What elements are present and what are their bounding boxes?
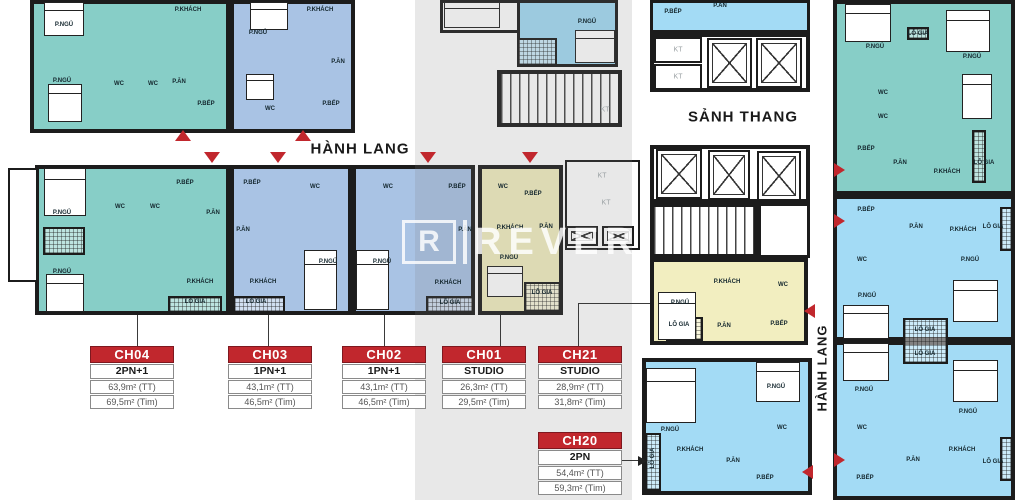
entrance-marker-icon — [804, 304, 815, 318]
card-connector — [578, 303, 650, 304]
room-label-kitchen: P.BẾP — [756, 475, 773, 481]
room-label-kitchen: P.BẾP — [857, 207, 874, 213]
room-label-bedroom: P.NGỦ — [249, 30, 267, 36]
card-connector — [268, 315, 269, 346]
bed-icon — [843, 305, 889, 339]
room-label-living: P.KHÁCH — [934, 169, 961, 175]
room-label-wc: WC — [857, 257, 867, 263]
room-label-wc: WC — [310, 184, 320, 190]
watermark-logo-icon: R — [402, 220, 456, 264]
entrance-marker-icon — [420, 152, 436, 163]
room-label-wc: WC — [148, 81, 158, 87]
room-label-kitchen: P.BẾP — [448, 184, 465, 190]
unit-area-tim: 46,5m² (Tim) — [342, 395, 426, 409]
room-label-bedroom: P.NGỦ — [855, 387, 873, 393]
floor-plan: P.NGỦ P.KHÁCH P.NGỦ WC WC P.ĂN P.BẾP P.N… — [0, 0, 1015, 500]
bed-icon — [845, 4, 891, 42]
entrance-marker-icon — [834, 163, 845, 177]
unit-area-tt: 43,1m² (TT) — [342, 380, 426, 394]
entrance-marker-icon — [204, 152, 220, 163]
room-label-dining: P.ĂN — [713, 3, 727, 9]
room-label-bedroom: P.NGỦ — [373, 259, 391, 265]
unit-code: CH03 — [228, 346, 312, 363]
room-label-kitchen: P.BẾP — [243, 180, 260, 186]
stairs-core — [650, 203, 758, 258]
room-label-living: P.KHÁCH — [187, 279, 214, 285]
room-label-wc: WC — [498, 184, 508, 190]
room-label-dining: P.ĂN — [717, 323, 731, 329]
room-label-loggia: LÔ GIA — [440, 300, 461, 306]
room-label-kitchen: P.BẾP — [197, 101, 214, 107]
room-label-tech: KT — [601, 107, 610, 114]
room-label-bedroom: P.NGỦ — [578, 19, 596, 25]
room-label-kitchen: P.BẾP — [322, 101, 339, 107]
corridor-label-horizontal: HÀNH LANG — [311, 141, 410, 158]
bed-icon — [953, 280, 998, 322]
unit-area-tt: 26,3m² (TT) — [442, 380, 526, 394]
unit-type: 2PN — [538, 450, 622, 465]
unit-area-tt: 54,4m² (TT) — [538, 466, 622, 480]
bed-icon — [44, 2, 84, 36]
room-label-living: P.KHÁCH — [677, 447, 704, 453]
room-label-dining: P.ĂN — [331, 59, 345, 65]
entrance-marker-icon — [834, 453, 845, 467]
room-label-bedroom: P.NGỦ — [319, 259, 337, 265]
room-label-bedroom: P.NGỦ — [671, 300, 689, 306]
room-label-tech: KT — [598, 173, 607, 180]
room-label-living: P.KHÁCH — [175, 7, 202, 13]
entrance-marker-icon — [175, 130, 191, 141]
room-label-wc: WC — [265, 106, 275, 112]
unit-type: 1PN+1 — [228, 364, 312, 379]
unit-code: CH02 — [342, 346, 426, 363]
unit-type: STUDIO — [538, 364, 622, 379]
room-label-loggia: LÔ GIA — [908, 31, 929, 37]
room-label-bedroom: P.NGỦ — [53, 210, 71, 216]
room-label-bedroom: P.NGỦ — [767, 384, 785, 390]
unit-area-tt: 28,9m² (TT) — [538, 380, 622, 394]
room-label-living: P.KHÁCH — [250, 279, 277, 285]
room-label-loggia: LÔ GIA — [915, 327, 936, 333]
room-label-kitchen: P.BẾP — [664, 9, 681, 15]
room-label-wc: WC — [150, 204, 160, 210]
card-connector-arrow-icon — [638, 456, 647, 466]
unit-card-ch02: CH02 1PN+1 43,1m² (TT) 46,5m² (Tim) — [342, 346, 426, 409]
room-label-loggia: LÔ GIA — [974, 160, 995, 166]
unit-card-ch04: CH04 2PN+1 63,9m² (TT) 69,5m² (Tim) — [90, 346, 174, 409]
room-label-bedroom: P.NGỦ — [53, 78, 71, 84]
unit-area-tim: 69,5m² (Tim) — [90, 395, 174, 409]
room-label-wc: WC — [114, 81, 124, 87]
room-label-living: P.KHÁCH — [435, 280, 462, 286]
room-label-loggia: LÔ GIA — [532, 290, 553, 296]
loggia-hatch — [972, 130, 986, 183]
bathroom-hatch — [43, 227, 85, 255]
loggia-hatch — [903, 318, 948, 364]
elevator-icon — [656, 149, 702, 199]
room-label-loggia: LÔ GIA — [915, 351, 936, 357]
unit-area-tim: 29,5m² (Tim) — [442, 395, 526, 409]
room-label-bedroom: P.NGỦ — [959, 409, 977, 415]
card-connector — [137, 315, 138, 346]
room-label-dining: P.ĂN — [172, 79, 186, 85]
unit-area-tim: 59,3m² (Tim) — [538, 481, 622, 495]
unit-card-ch20: CH20 2PN 54,4m² (TT) 59,3m² (Tim) — [538, 432, 622, 495]
unit-code: CH04 — [90, 346, 174, 363]
unit-area-tim: 31,8m² (Tim) — [538, 395, 622, 409]
watermark-divider — [463, 220, 467, 264]
room-label-bedroom: P.NGỦ — [53, 269, 71, 275]
unit-code: CH21 — [538, 346, 622, 363]
room-label-wc: WC — [857, 425, 867, 431]
elevator-icon — [756, 38, 802, 88]
room-label-living: P.KHÁCH — [714, 279, 741, 285]
room-label-wc: WC — [115, 204, 125, 210]
room-label-wc: WC — [778, 282, 788, 288]
room-label-kitchen: P.BẾP — [176, 180, 193, 186]
bed-icon — [843, 343, 889, 381]
room-label-bedroom: P.NGỦ — [963, 54, 981, 60]
card-connector — [578, 303, 579, 346]
entrance-marker-icon — [270, 152, 286, 163]
room-label-tech: KT — [674, 74, 683, 81]
room-label-dining: P.ĂN — [909, 224, 923, 230]
room-label-bedroom: P.NGỦ — [858, 293, 876, 299]
elevator-icon — [707, 38, 752, 88]
room-label-living: P.KHÁCH — [949, 447, 976, 453]
room-label-loggia: LÔ GIA — [983, 224, 1004, 230]
unit-area-tt: 43,1m² (TT) — [228, 380, 312, 394]
corridor-label-vertical: HÀNH LANG — [815, 325, 830, 412]
room-label-kitchen: P.BẾP — [524, 191, 541, 197]
room-label-kitchen: P.BẾP — [857, 146, 874, 152]
room-label-living: P.KHÁCH — [307, 7, 334, 13]
stair-lobby-label: SẢNH THANG — [688, 109, 798, 126]
room-label-tech: KT — [674, 47, 683, 54]
room-label-wc: WC — [777, 425, 787, 431]
room-label-loggia: LÔ GIA — [983, 459, 1004, 465]
unit-card-ch01: CH01 STUDIO 26,3m² (TT) 29,5m² (Tim) — [442, 346, 526, 409]
bed-icon — [250, 2, 288, 30]
unit-area-tt: 63,9m² (TT) — [90, 380, 174, 394]
bed-icon — [962, 74, 992, 119]
bed-icon — [953, 360, 998, 402]
unit-type: 2PN+1 — [90, 364, 174, 379]
bed-icon — [48, 84, 82, 122]
entrance-marker-icon — [802, 465, 813, 479]
card-connector — [500, 315, 501, 346]
bed-icon — [946, 10, 990, 52]
core-lobby — [758, 203, 810, 258]
room-label-tech: KT — [602, 200, 611, 207]
watermark-word: REVER — [474, 223, 640, 261]
room-label-dining: P.ĂN — [206, 210, 220, 216]
unit-code: CH20 — [538, 432, 622, 449]
bed-icon — [46, 274, 84, 312]
room-label-bedroom: P.NGỦ — [55, 22, 73, 28]
room-label-dining: P.ĂN — [906, 457, 920, 463]
room-label-dining: P.ĂN — [893, 160, 907, 166]
unit-type: 1PN+1 — [342, 364, 426, 379]
unit-code: CH01 — [442, 346, 526, 363]
elevator-icon — [708, 150, 750, 200]
room-label-loggia: LÔ GIA — [650, 448, 656, 469]
room-label-dining: P.ĂN — [236, 227, 250, 233]
room-label-loggia: LÔ GIA — [246, 299, 267, 305]
room-label-wc: WC — [878, 90, 888, 96]
left-edge-room — [8, 168, 38, 282]
bed-icon — [246, 74, 274, 100]
card-connector — [620, 460, 640, 461]
room-label-kitchen: P.BẾP — [770, 321, 787, 327]
unit-card-ch21: CH21 STUDIO 28,9m² (TT) 31,8m² (Tim) — [538, 346, 622, 409]
entrance-marker-icon — [295, 130, 311, 141]
unit-type: STUDIO — [442, 364, 526, 379]
unit-top-2-plan — [230, 0, 355, 133]
bed-icon — [646, 368, 696, 423]
unit-area-tim: 46,5m² (Tim) — [228, 395, 312, 409]
room-label-loggia: LÔ GIA — [669, 322, 690, 328]
room-label-loggia: LÔ GIA — [185, 299, 206, 305]
room-label-living: P.KHÁCH — [950, 227, 977, 233]
room-label-bedroom: P.NGỦ — [961, 257, 979, 263]
bed-icon — [756, 362, 800, 402]
room-label-wc: WC — [878, 114, 888, 120]
watermark: R REVER — [402, 220, 640, 264]
elevator-icon — [757, 151, 801, 201]
bed-icon — [44, 168, 86, 216]
room-label-wc: WC — [383, 184, 393, 190]
room-label-kitchen: P.BẾP — [856, 475, 873, 481]
entrance-marker-icon — [834, 214, 845, 228]
room-label-bedroom: P.NGỦ — [661, 427, 679, 433]
unit-card-ch03: CH03 1PN+1 43,1m² (TT) 46,5m² (Tim) — [228, 346, 312, 409]
card-connector — [384, 315, 385, 346]
room-label-bedroom: P.NGỦ — [866, 44, 884, 50]
entrance-marker-icon — [522, 152, 538, 163]
unit-top-core-plan — [650, 0, 810, 33]
room-label-dining: P.ĂN — [726, 458, 740, 464]
